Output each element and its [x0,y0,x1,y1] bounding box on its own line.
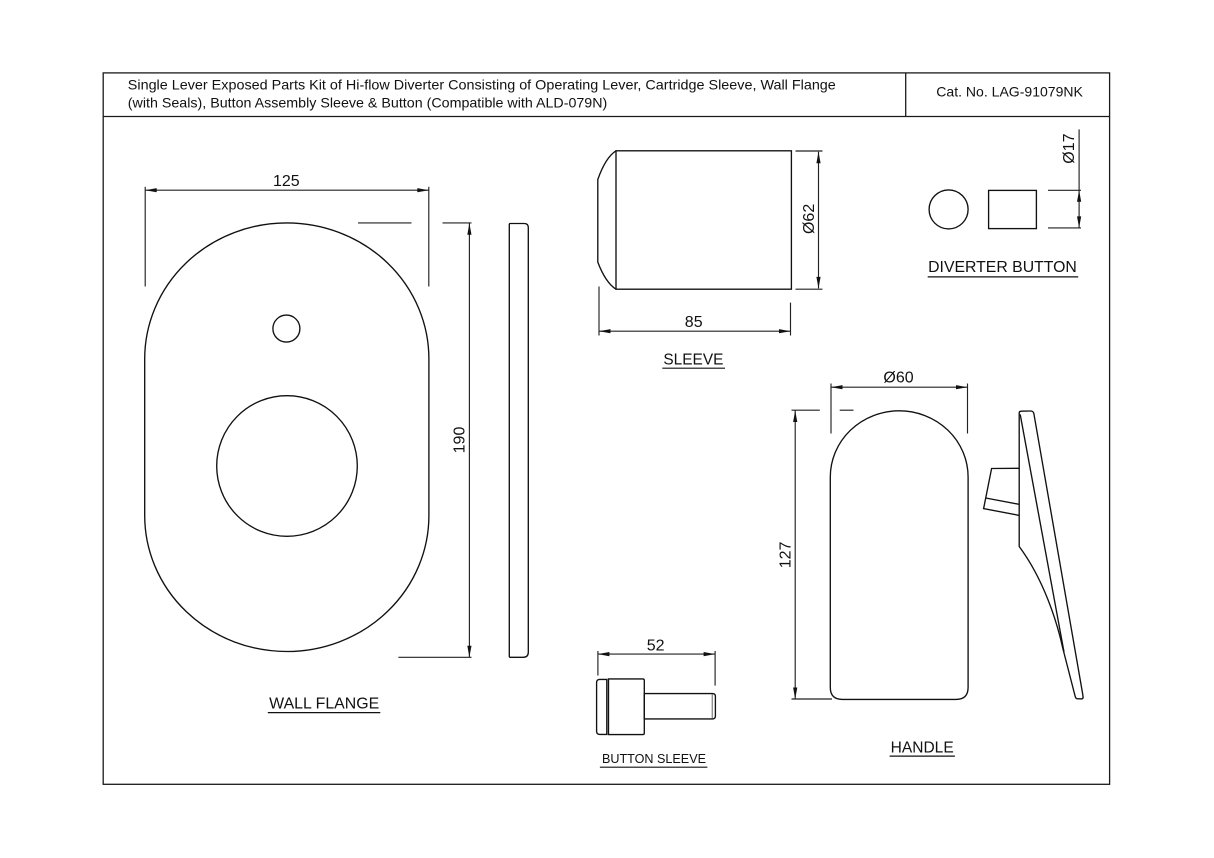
svg-text:127: 127 [778,541,795,568]
svg-text:125: 125 [273,173,300,190]
svg-text:85: 85 [685,314,703,331]
svg-text:52: 52 [647,638,665,655]
svg-text:Ø62: Ø62 [801,204,818,234]
svg-text:190: 190 [452,427,469,454]
svg-text:SLEEVE: SLEEVE [663,352,723,369]
svg-text:Ø17: Ø17 [1061,133,1078,163]
svg-text:(with Seals), Button Assembly: (with Seals), Button Assembly Sleeve & B… [128,95,608,111]
svg-text:BUTTON SLEEVE: BUTTON SLEEVE [602,752,706,766]
svg-text:Cat. No. LAG-91079NK: Cat. No. LAG-91079NK [936,84,1083,100]
svg-text:Ø60: Ø60 [883,370,913,387]
svg-text:Single Lever Exposed Parts Kit: Single Lever Exposed Parts Kit of Hi-flo… [128,76,836,92]
svg-text:DIVERTER BUTTON: DIVERTER BUTTON [928,259,1077,276]
svg-text:HANDLE: HANDLE [891,739,954,756]
svg-text:WALL FLANGE: WALL FLANGE [269,695,379,712]
